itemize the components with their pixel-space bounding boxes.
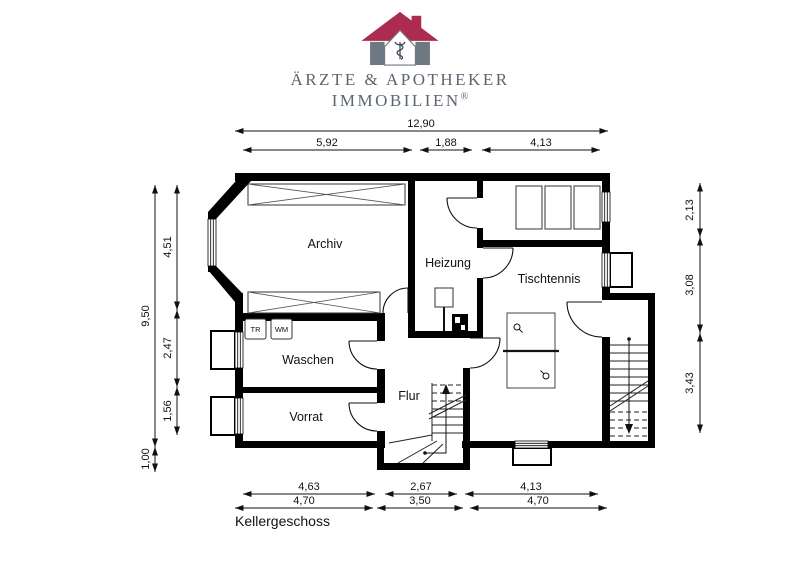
dim-bottom-r1-1: 4,63	[298, 481, 319, 493]
light-well-tischtennis-east	[610, 253, 632, 287]
window-vorrat	[235, 398, 243, 434]
bay-chamfer-top	[208, 173, 251, 219]
boiler-symbol	[435, 288, 453, 331]
window-tischtennis-south	[515, 441, 548, 448]
dimensions-left: 9,50 1,00 4,51 2,47 1,56	[140, 185, 177, 472]
door-heizung-tischtennis	[483, 248, 513, 278]
dim-right-2: 3,08	[684, 274, 696, 295]
stairs-external	[610, 337, 648, 436]
dimensions-right: 2,13 3,08 3,43	[684, 183, 700, 433]
light-well-vorrat	[211, 397, 235, 435]
room-label-vorrat: Vorrat	[289, 410, 323, 424]
dim-right-3: 3,43	[684, 372, 696, 393]
light-well-waschen	[211, 331, 235, 369]
dim-bottom-r1-2: 2,67	[410, 481, 431, 493]
dimensions-top: 12,90 5,92 1,88 4,13	[235, 118, 608, 150]
floor-label: Kellergeschoss	[235, 513, 330, 529]
closet-symbol-north	[248, 184, 405, 205]
dim-left-extension: 1,00	[140, 448, 152, 469]
table-tennis-table	[503, 313, 559, 388]
dim-top-3: 4,13	[530, 137, 551, 149]
room-label-archiv: Archiv	[308, 237, 343, 251]
door-waschen	[349, 341, 377, 369]
dim-left-3: 1,56	[162, 400, 174, 421]
dim-bottom-r1-3: 4,13	[520, 481, 541, 493]
shelf-units	[516, 186, 600, 229]
dim-bottom-r2-1: 4,70	[293, 495, 314, 507]
page-canvas: ÄRZTE & APOTHEKER IMMOBILIEN®	[0, 0, 800, 565]
door-flur-tischtennis	[470, 338, 500, 368]
dryer-label: TR	[251, 325, 262, 334]
stair-direction-arrow-down	[625, 337, 633, 434]
dim-bottom-r2-3: 4,70	[527, 495, 548, 507]
dim-left-overall: 9,50	[140, 305, 152, 326]
door-heizung-storage	[447, 198, 477, 228]
window-waschen	[235, 332, 243, 368]
door-tischtennis-exterior	[567, 302, 602, 337]
doors	[349, 198, 602, 431]
appliance-washer: WM	[271, 319, 292, 339]
room-label-tischtennis: Tischtennis	[518, 272, 581, 286]
window-tischtennis-east	[602, 253, 610, 287]
dim-top-overall: 12,90	[407, 118, 435, 130]
light-well-tischtennis-south	[513, 448, 551, 465]
stair-direction-arrow-up	[423, 384, 450, 455]
closet-symbol-south	[248, 292, 380, 313]
appliance-dryer: TR	[245, 319, 266, 339]
dim-top-1: 5,92	[316, 137, 337, 149]
window-bay	[208, 219, 216, 266]
dim-left-2: 2,47	[162, 337, 174, 358]
room-label-flur: Flur	[398, 389, 420, 403]
door-archiv	[383, 288, 408, 313]
dimensions-bottom: 4,63 2,67 4,13 4,70 3,50 4,70	[235, 481, 607, 508]
washer-label: WM	[275, 325, 288, 334]
room-label-heizung: Heizung	[425, 256, 471, 270]
door-vorrat	[349, 403, 377, 431]
dim-bottom-r2-2: 3,50	[409, 495, 430, 507]
floor-plan-drawing: TR WM	[0, 0, 800, 565]
dim-right-1: 2,13	[684, 199, 696, 220]
window-storage-room	[602, 192, 610, 222]
chimney-symbol	[452, 314, 468, 332]
room-label-waschen: Waschen	[282, 353, 334, 367]
dim-left-1: 4,51	[162, 236, 174, 257]
dim-top-2: 1,88	[435, 137, 456, 149]
bay-chamfer-bottom	[208, 266, 243, 302]
